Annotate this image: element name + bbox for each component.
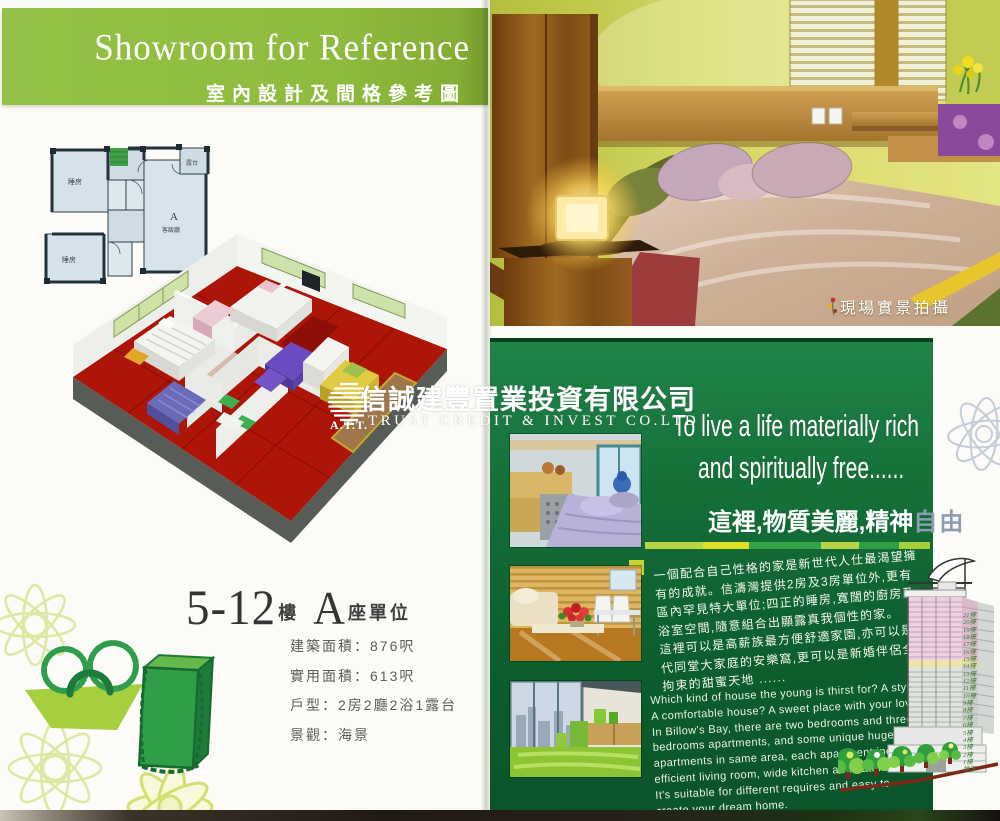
label-unit-letter: A [170, 211, 178, 223]
bottom-left-decoration [0, 572, 270, 821]
headline-line2: and spiritually free...... [698, 450, 904, 486]
banner-title-zh: 室內設計及間格參考圖 [206, 79, 466, 106]
floor-label: 6樓 [963, 722, 993, 729]
floor-label: 5樓 [963, 730, 993, 737]
green-bowl-illustration [25, 684, 143, 730]
building-floor-labels: 21樓20樓19樓18樓17樓16樓15樓14樓13樓12樓11樓10樓9樓8樓… [963, 612, 993, 774]
header-banner: Showroom for Reference 室內設計及間格參考圖 [2, 8, 488, 105]
floor-label: 17樓 [963, 641, 993, 648]
block-letter: A [313, 582, 346, 636]
floor-label: 11樓 [963, 685, 993, 692]
floor-label: 13樓 [963, 671, 993, 678]
floor-label: 14樓 [963, 663, 993, 670]
green-box-illustration [138, 654, 213, 774]
headline-line1: To live a life materially rich [673, 408, 919, 444]
page-gutter-shadow [481, 0, 492, 821]
thumb-bedroom-purple [510, 434, 641, 547]
subheadline: 這裡,物質美麗,精神自由 [708, 502, 965, 537]
brochure-spread: Showroom for Reference 室內設計及間格參考圖 [0, 0, 1000, 821]
thumb-bedroom-green [510, 681, 641, 777]
apartment-3d-rendering [52, 232, 464, 574]
label-bedroom-top: 睡房 [68, 177, 82, 186]
floor-label: 19樓 [963, 627, 993, 634]
banner-title-en: Showroom for Reference [94, 27, 470, 69]
spec-line: 建築面積：876呎 [290, 632, 490, 662]
subheadline-grey: 自由 [913, 509, 965, 536]
floor-label: 地下 [963, 766, 993, 773]
unit-specs: 建築面積：876呎實用面積：613呎戶型：2房2廳2浴1露台景觀：海景 [290, 632, 490, 750]
floor-label: 8樓 [963, 707, 993, 714]
floor-label: 2樓 [963, 752, 993, 759]
flower-outline-decoration [912, 382, 1000, 482]
spec-line: 實用面積：613呎 [290, 662, 490, 692]
thumb-living-room [510, 566, 641, 661]
label-balcony: 露台 [186, 159, 198, 167]
photo-caption: 現場實景拍攝 [840, 296, 951, 318]
floor-label: 20樓 [963, 619, 993, 626]
page-bottom-edge [0, 810, 1000, 821]
block-suffix: 座單位 [348, 599, 411, 625]
caption-flower-icon [827, 297, 839, 317]
floor-label: 3樓 [963, 744, 993, 751]
floor-suffix: 樓 [278, 599, 299, 625]
bedroom-photo [490, 0, 1000, 326]
subheadline-white: 這裡,物質美麗,精神 [708, 509, 913, 536]
spec-line: 景觀：海景 [290, 721, 490, 751]
spec-line: 戶型：2房2廳2浴1露台 [290, 691, 490, 721]
floor-label: 16樓 [963, 649, 993, 656]
